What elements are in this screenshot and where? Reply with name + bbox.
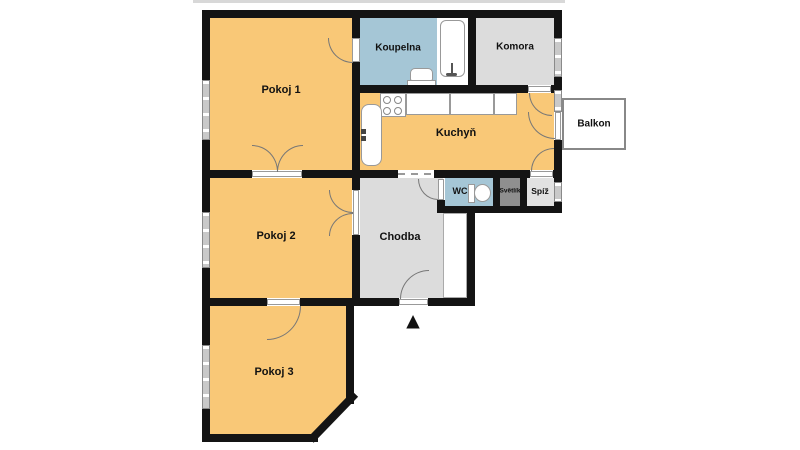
window — [554, 38, 562, 77]
kitchen-sink — [361, 104, 382, 166]
wall — [434, 170, 530, 178]
room-label-chodba: Chodba — [380, 231, 421, 243]
door-leaf — [530, 171, 553, 177]
room-label-wc: WC — [453, 186, 468, 196]
door-leaf — [528, 86, 551, 92]
room-label-balkon: Balkon — [577, 119, 610, 130]
floorplan: Pokoj 1 Pokoj 2 Pokoj 3 Koupelna Komora … — [0, 0, 800, 450]
wall — [202, 434, 318, 442]
wall — [352, 85, 528, 93]
window — [202, 80, 210, 140]
wall — [554, 10, 562, 38]
room-label-kuchyn: Kuchyň — [436, 127, 476, 139]
door-leaf — [352, 38, 360, 62]
door-leaf — [438, 179, 444, 200]
room-label-pokoj3: Pokoj 3 — [254, 366, 293, 378]
wall — [520, 178, 527, 206]
stove-burner-icon — [394, 107, 402, 115]
kitchen-counter — [450, 93, 494, 115]
wall — [202, 170, 252, 178]
wall — [554, 202, 562, 207]
top-border-line — [193, 0, 565, 3]
room-label-koupelna: Koupelna — [375, 43, 421, 54]
wall — [437, 206, 562, 213]
chodba-closet-nook — [443, 213, 467, 298]
wall — [352, 10, 360, 38]
faucet-icon — [361, 129, 366, 134]
wall — [437, 200, 445, 206]
window — [202, 212, 210, 268]
stove-burner-icon — [394, 96, 402, 104]
window — [554, 182, 562, 202]
faucet-icon — [361, 136, 366, 141]
balcony-door-leaf — [555, 112, 561, 140]
open-passage-dashes — [398, 173, 434, 175]
wall — [302, 170, 398, 178]
wall — [202, 298, 267, 306]
toilet-bowl — [474, 184, 491, 202]
wall — [352, 235, 360, 306]
entrance-door-leaf — [399, 299, 428, 305]
wall — [202, 10, 562, 18]
door-leaf — [353, 190, 359, 235]
wall — [346, 298, 354, 404]
shower-icon — [446, 73, 457, 76]
room-label-svetlik: Světlík — [500, 188, 521, 195]
room-label-komora: Komora — [496, 42, 534, 53]
window — [202, 345, 210, 409]
room-label-spiz: Spíž — [531, 186, 548, 196]
door-leaf — [267, 299, 300, 305]
kitchen-counter — [494, 93, 517, 115]
room-label-pokoj1: Pokoj 1 — [261, 84, 300, 96]
wall — [467, 206, 475, 306]
wall — [300, 298, 399, 306]
wall — [554, 77, 562, 90]
entrance-arrow-icon: ▲ — [402, 310, 425, 333]
wall — [554, 140, 562, 178]
room-label-pokoj2: Pokoj 2 — [256, 230, 295, 242]
stove-burner-icon — [383, 107, 391, 115]
wall — [352, 62, 360, 190]
stove-burner-icon — [383, 96, 391, 104]
wall — [468, 10, 476, 93]
kitchen-counter — [406, 93, 450, 115]
window — [554, 90, 562, 112]
